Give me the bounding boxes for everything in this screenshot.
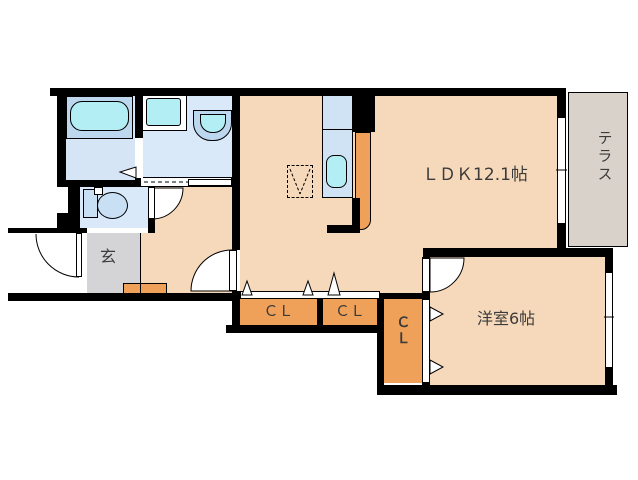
entrance-door-leaf xyxy=(76,233,82,277)
wall-kitchen-l-horizontal xyxy=(327,225,360,233)
western-door-leaf xyxy=(422,258,430,292)
wall-top xyxy=(50,88,566,96)
toilet-handle xyxy=(94,187,103,195)
closet-3-label: ＣＬ xyxy=(394,315,409,347)
ldk-terrace-window xyxy=(557,118,566,223)
ldk-label: ＬＤＫ12.1帖 xyxy=(408,166,542,185)
wall-closet3-left xyxy=(377,293,384,395)
entrance-label: 玄 xyxy=(100,248,116,266)
room-ldk-lower xyxy=(240,248,423,293)
hall-door-leaf xyxy=(229,250,237,291)
entrance-divider xyxy=(140,233,141,293)
entrance-door-swing-icon xyxy=(36,234,79,277)
wall-toilet-right-lower xyxy=(148,219,155,233)
wall-western-right-lower xyxy=(605,367,613,395)
toilet-bowl xyxy=(97,192,128,219)
wall-kitchen-l-vertical xyxy=(352,198,360,226)
wall-south xyxy=(377,385,617,395)
wall-ldk-bottom xyxy=(423,248,610,257)
bathtub-icon xyxy=(70,101,129,131)
washroom-sliding-door-panel xyxy=(188,179,232,186)
wall-ldk-right-upper xyxy=(557,88,566,118)
closet-2-label: ＣＬ xyxy=(323,303,377,320)
wall-closet-bottom xyxy=(226,325,383,333)
washing-machine-tub xyxy=(146,98,181,126)
western-room-window xyxy=(605,273,613,367)
kitchen-upper-unit xyxy=(322,95,353,130)
floor-plan: ＬＤＫ12.1帖 洋室6帖 テラス 玄 ＣＬ ＣＬ ＣＬ xyxy=(0,0,638,480)
kitchen-sink-icon xyxy=(326,155,347,188)
wall-western-right-upper xyxy=(605,248,613,273)
wall-hall-bottom xyxy=(8,293,240,301)
toilet-door-leaf xyxy=(148,187,155,219)
wall-left xyxy=(57,88,66,187)
wall-kitchen-block xyxy=(353,95,375,132)
refrigerator-space-icon xyxy=(287,165,313,198)
western-room-label: 洋室6帖 xyxy=(477,310,535,328)
wall-bath-divider-upper xyxy=(135,88,143,138)
hallway-upper xyxy=(155,187,232,233)
wall-ldk-right-lower xyxy=(557,223,566,257)
closet3-door-track xyxy=(422,299,430,383)
terrace-label: テラス xyxy=(596,130,613,184)
bathroom-door-gap xyxy=(135,138,143,178)
closet-door-track xyxy=(240,291,380,299)
wall-wash-ldk xyxy=(232,88,240,250)
closet-1-label: ＣＬ xyxy=(240,303,317,320)
